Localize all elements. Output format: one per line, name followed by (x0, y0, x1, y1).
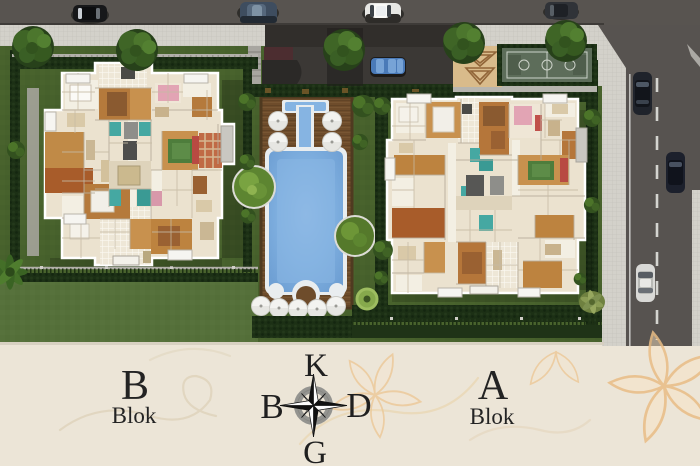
svg-text:Blok: Blok (112, 403, 157, 428)
svg-text:B: B (260, 387, 283, 426)
svg-text:D: D (346, 386, 371, 425)
svg-text:A: A (478, 363, 509, 409)
svg-text:K: K (304, 348, 328, 384)
svg-text:G: G (303, 435, 327, 466)
svg-text:Blok: Blok (470, 404, 515, 429)
